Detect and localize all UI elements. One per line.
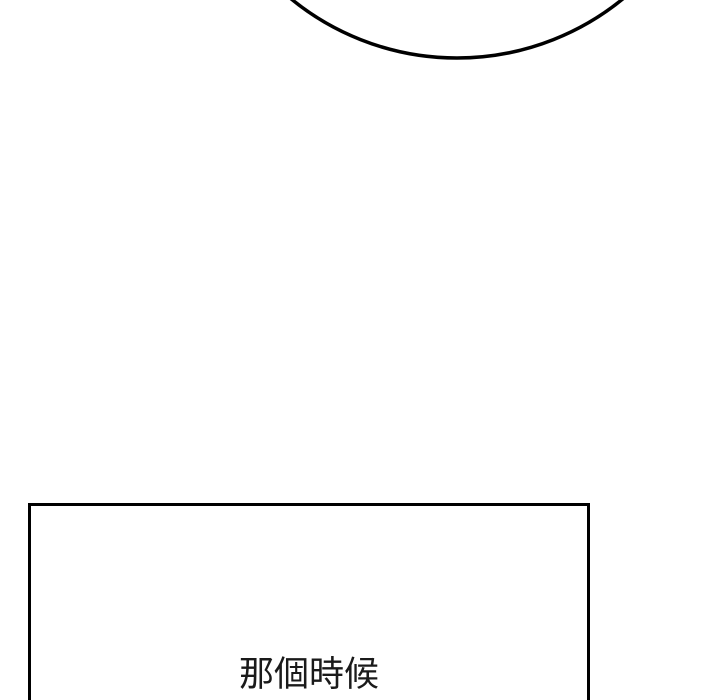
comic-panel: 那個時候: [28, 503, 590, 700]
dialogue-text: 那個時候: [31, 657, 587, 692]
speech-bubble-outline: [195, 0, 719, 58]
comic-page: 那個時候: [0, 0, 720, 700]
